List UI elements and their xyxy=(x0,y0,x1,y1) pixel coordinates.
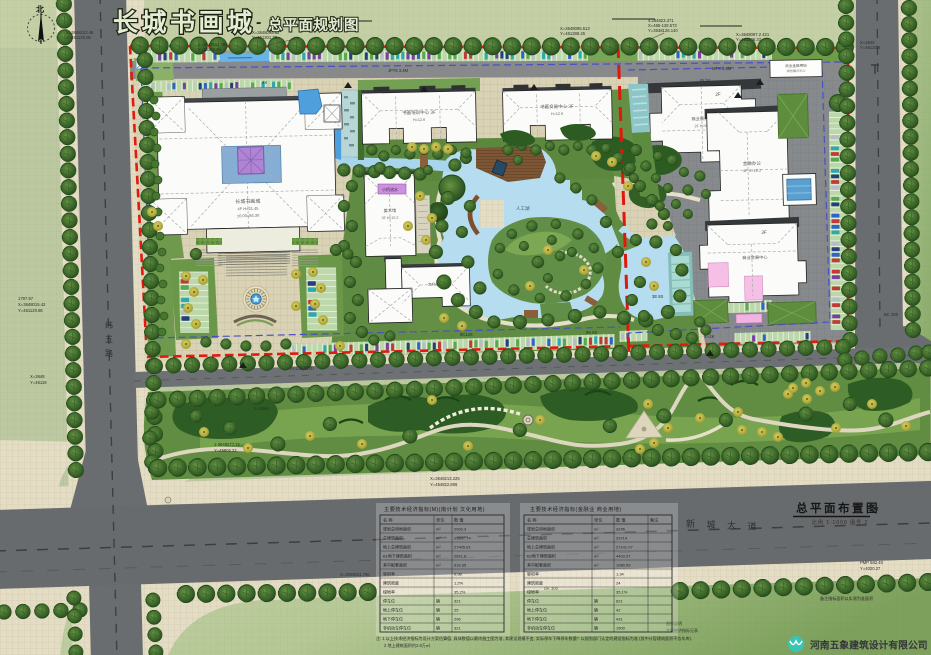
svg-text:辆: 辆 xyxy=(594,624,598,630)
svg-text:辆: 辆 xyxy=(436,606,440,612)
svg-text:停车位: 停车位 xyxy=(383,597,395,603)
svg-text:新: 新 xyxy=(686,518,695,529)
svg-text:非机动车停车位: 非机动车停车位 xyxy=(383,624,411,630)
svg-text:河南五象建筑设计有限公司: 河南五象建筑设计有限公司 xyxy=(810,639,928,652)
svg-text:1080.59: 1080.59 xyxy=(616,562,631,567)
svg-text:其中配套面积: 其中配套面积 xyxy=(383,561,407,567)
svg-text:总平面布置图: 总平面布置图 xyxy=(796,501,880,515)
svg-text:29714: 29714 xyxy=(616,535,628,540)
svg-text:m²: m² xyxy=(436,544,441,549)
svg-text:纬: 纬 xyxy=(105,320,113,330)
svg-text:地下停车位: 地下停车位 xyxy=(527,615,547,621)
svg-text:书: 书 xyxy=(170,9,195,37)
svg-text:单位: 单位 xyxy=(594,517,602,524)
svg-text:431: 431 xyxy=(616,616,623,621)
svg-text:m²: m² xyxy=(594,544,599,549)
svg-text:4403.37: 4403.37 xyxy=(616,553,631,558)
svg-text:24: 24 xyxy=(616,580,621,585)
svg-text:辆: 辆 xyxy=(594,615,598,621)
svg-text:停车位: 停车位 xyxy=(527,597,539,603)
svg-text:城: 城 xyxy=(142,9,167,37)
svg-text:单位: 单位 xyxy=(436,517,444,524)
svg-text:地上停车位: 地上停车位 xyxy=(383,606,403,612)
svg-text:2 地上建筑面积约2.8万㎡.: 2 地上建筑面积约2.8万㎡. xyxy=(384,642,431,648)
svg-text:地上总建筑面积: 地上总建筑面积 xyxy=(527,543,555,549)
svg-text:辆: 辆 xyxy=(436,615,440,621)
svg-text:面: 面 xyxy=(298,17,313,34)
svg-text:辆: 辆 xyxy=(594,597,598,603)
svg-text:321: 321 xyxy=(454,625,461,630)
svg-text:2821.6: 2821.6 xyxy=(454,553,467,558)
svg-text:m²: m² xyxy=(436,526,441,531)
svg-text:规划总用地面积: 规划总用地面积 xyxy=(383,525,411,531)
svg-text:地上总建筑面积: 地上总建筑面积 xyxy=(383,543,411,549)
svg-text:辆: 辆 xyxy=(436,624,440,630)
svg-text:1.2%: 1.2% xyxy=(454,580,464,585)
svg-text:数 值: 数 值 xyxy=(454,517,464,524)
svg-text:备注指标面积以实测为准面积: 备注指标面积以实测为准面积 xyxy=(820,595,873,601)
svg-text:大: 大 xyxy=(727,520,736,531)
svg-text:27405.81: 27405.81 xyxy=(454,544,471,549)
svg-text:划: 划 xyxy=(329,16,344,34)
svg-text:建筑密度: 建筑密度 xyxy=(383,579,399,585)
svg-text:B1地下建筑面积: B1地下建筑面积 xyxy=(383,552,412,558)
svg-text:m²: m² xyxy=(594,562,599,567)
svg-text:M: M xyxy=(874,507,879,513)
svg-text:建筑密度: 建筑密度 xyxy=(527,579,543,585)
svg-text:比例 1:1000 图号 2: 比例 1:1000 图号 2 xyxy=(812,519,868,526)
svg-text:城: 城 xyxy=(707,520,716,530)
svg-text:北: 北 xyxy=(36,4,44,14)
svg-text:m²: m² xyxy=(594,526,599,531)
svg-text:数 值: 数 值 xyxy=(616,517,626,524)
svg-text:3245: 3245 xyxy=(616,526,626,531)
svg-text:m²: m² xyxy=(436,535,441,540)
svg-text:m²: m² xyxy=(436,562,441,567)
svg-text:296: 296 xyxy=(454,616,461,621)
svg-text:总建筑面积: 总建筑面积 xyxy=(527,534,547,540)
svg-text:621: 621 xyxy=(616,598,623,603)
svg-text:路: 路 xyxy=(105,348,113,358)
svg-text:长: 长 xyxy=(113,9,139,37)
svg-text:平: 平 xyxy=(283,17,298,34)
svg-text:616.35: 616.35 xyxy=(454,562,467,567)
svg-text:辆: 辆 xyxy=(436,597,440,603)
svg-text:总: 总 xyxy=(268,16,283,34)
svg-text:绿地率: 绿地率 xyxy=(527,588,539,594)
svg-text:-: - xyxy=(256,14,261,31)
svg-text:m²: m² xyxy=(436,553,441,558)
svg-text:27141.07: 27141.07 xyxy=(616,544,633,549)
svg-text:1.34: 1.34 xyxy=(616,571,625,576)
svg-text:非机动车停车位: 非机动车停车位 xyxy=(527,624,555,630)
svg-text:容积率: 容积率 xyxy=(527,570,539,576)
svg-text:29647.74: 29647.74 xyxy=(454,535,471,540)
svg-text:容积率: 容积率 xyxy=(383,570,395,576)
svg-text:图: 图 xyxy=(344,17,359,34)
svg-text:地下停车位: 地下停车位 xyxy=(383,615,403,621)
svg-text:m²: m² xyxy=(594,535,599,540)
svg-text:主要技术经济指标(M)(南计划 文化用地): 主要技术经济指标(M)(南计划 文化用地) xyxy=(384,505,485,513)
svg-text:地上停车位: 地上停车位 xyxy=(527,606,547,612)
svg-text:42: 42 xyxy=(616,607,621,612)
svg-text:名 称: 名 称 xyxy=(527,517,537,524)
svg-text:35.1%: 35.1% xyxy=(616,589,628,594)
svg-text:五: 五 xyxy=(105,335,113,344)
svg-text:321: 321 xyxy=(454,598,461,603)
svg-text:0.98: 0.98 xyxy=(454,571,463,576)
svg-text:B2地下建筑面积: B2地下建筑面积 xyxy=(527,552,556,558)
svg-text:1500: 1500 xyxy=(616,625,626,630)
svg-text:城: 城 xyxy=(227,9,252,37)
svg-text:注: 1 以上技术经济指标为设计方案估算值, 具体数值以最: 注: 1 以上技术经济指标为设计方案估算值, 具体数值以最终施工图为准, 其建设… xyxy=(376,635,692,641)
svg-text:画: 画 xyxy=(199,9,224,37)
svg-text:2002.3: 2002.3 xyxy=(454,526,467,531)
svg-text:名 称: 名 称 xyxy=(383,517,393,524)
svg-text:辆: 辆 xyxy=(594,606,598,612)
svg-text:25: 25 xyxy=(454,607,459,612)
svg-text:绿地率: 绿地率 xyxy=(383,588,395,594)
svg-text:规: 规 xyxy=(314,17,329,34)
svg-text:主要技术经济指标(金融业 商业用地): 主要技术经济指标(金融业 商业用地) xyxy=(530,505,622,513)
svg-text:道: 道 xyxy=(748,520,757,531)
svg-text:总建筑面积: 总建筑面积 xyxy=(383,534,403,540)
svg-text:其中配套面积: 其中配套面积 xyxy=(527,561,551,567)
svg-text:35.2%: 35.2% xyxy=(454,589,466,594)
svg-text:备注: 备注 xyxy=(650,517,659,524)
svg-text:m²: m² xyxy=(594,553,599,558)
svg-text:规划总用地面积: 规划总用地面积 xyxy=(527,525,555,531)
